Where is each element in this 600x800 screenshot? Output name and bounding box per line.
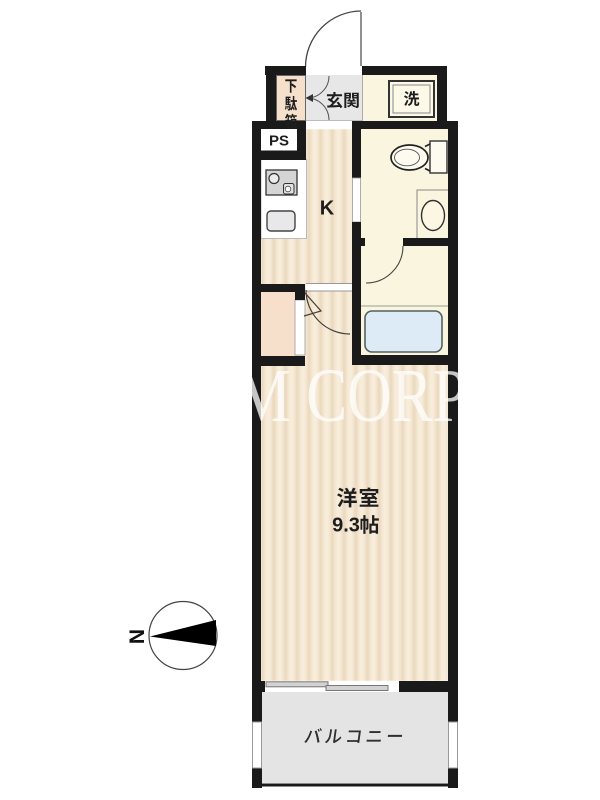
svg-text:M CORP: M CORP [236, 354, 467, 438]
svg-text:N: N [126, 629, 149, 644]
svg-text:K: K [320, 198, 335, 220]
svg-text:9.3: 9.3 [332, 515, 360, 537]
svg-text:PS: PS [269, 133, 289, 150]
